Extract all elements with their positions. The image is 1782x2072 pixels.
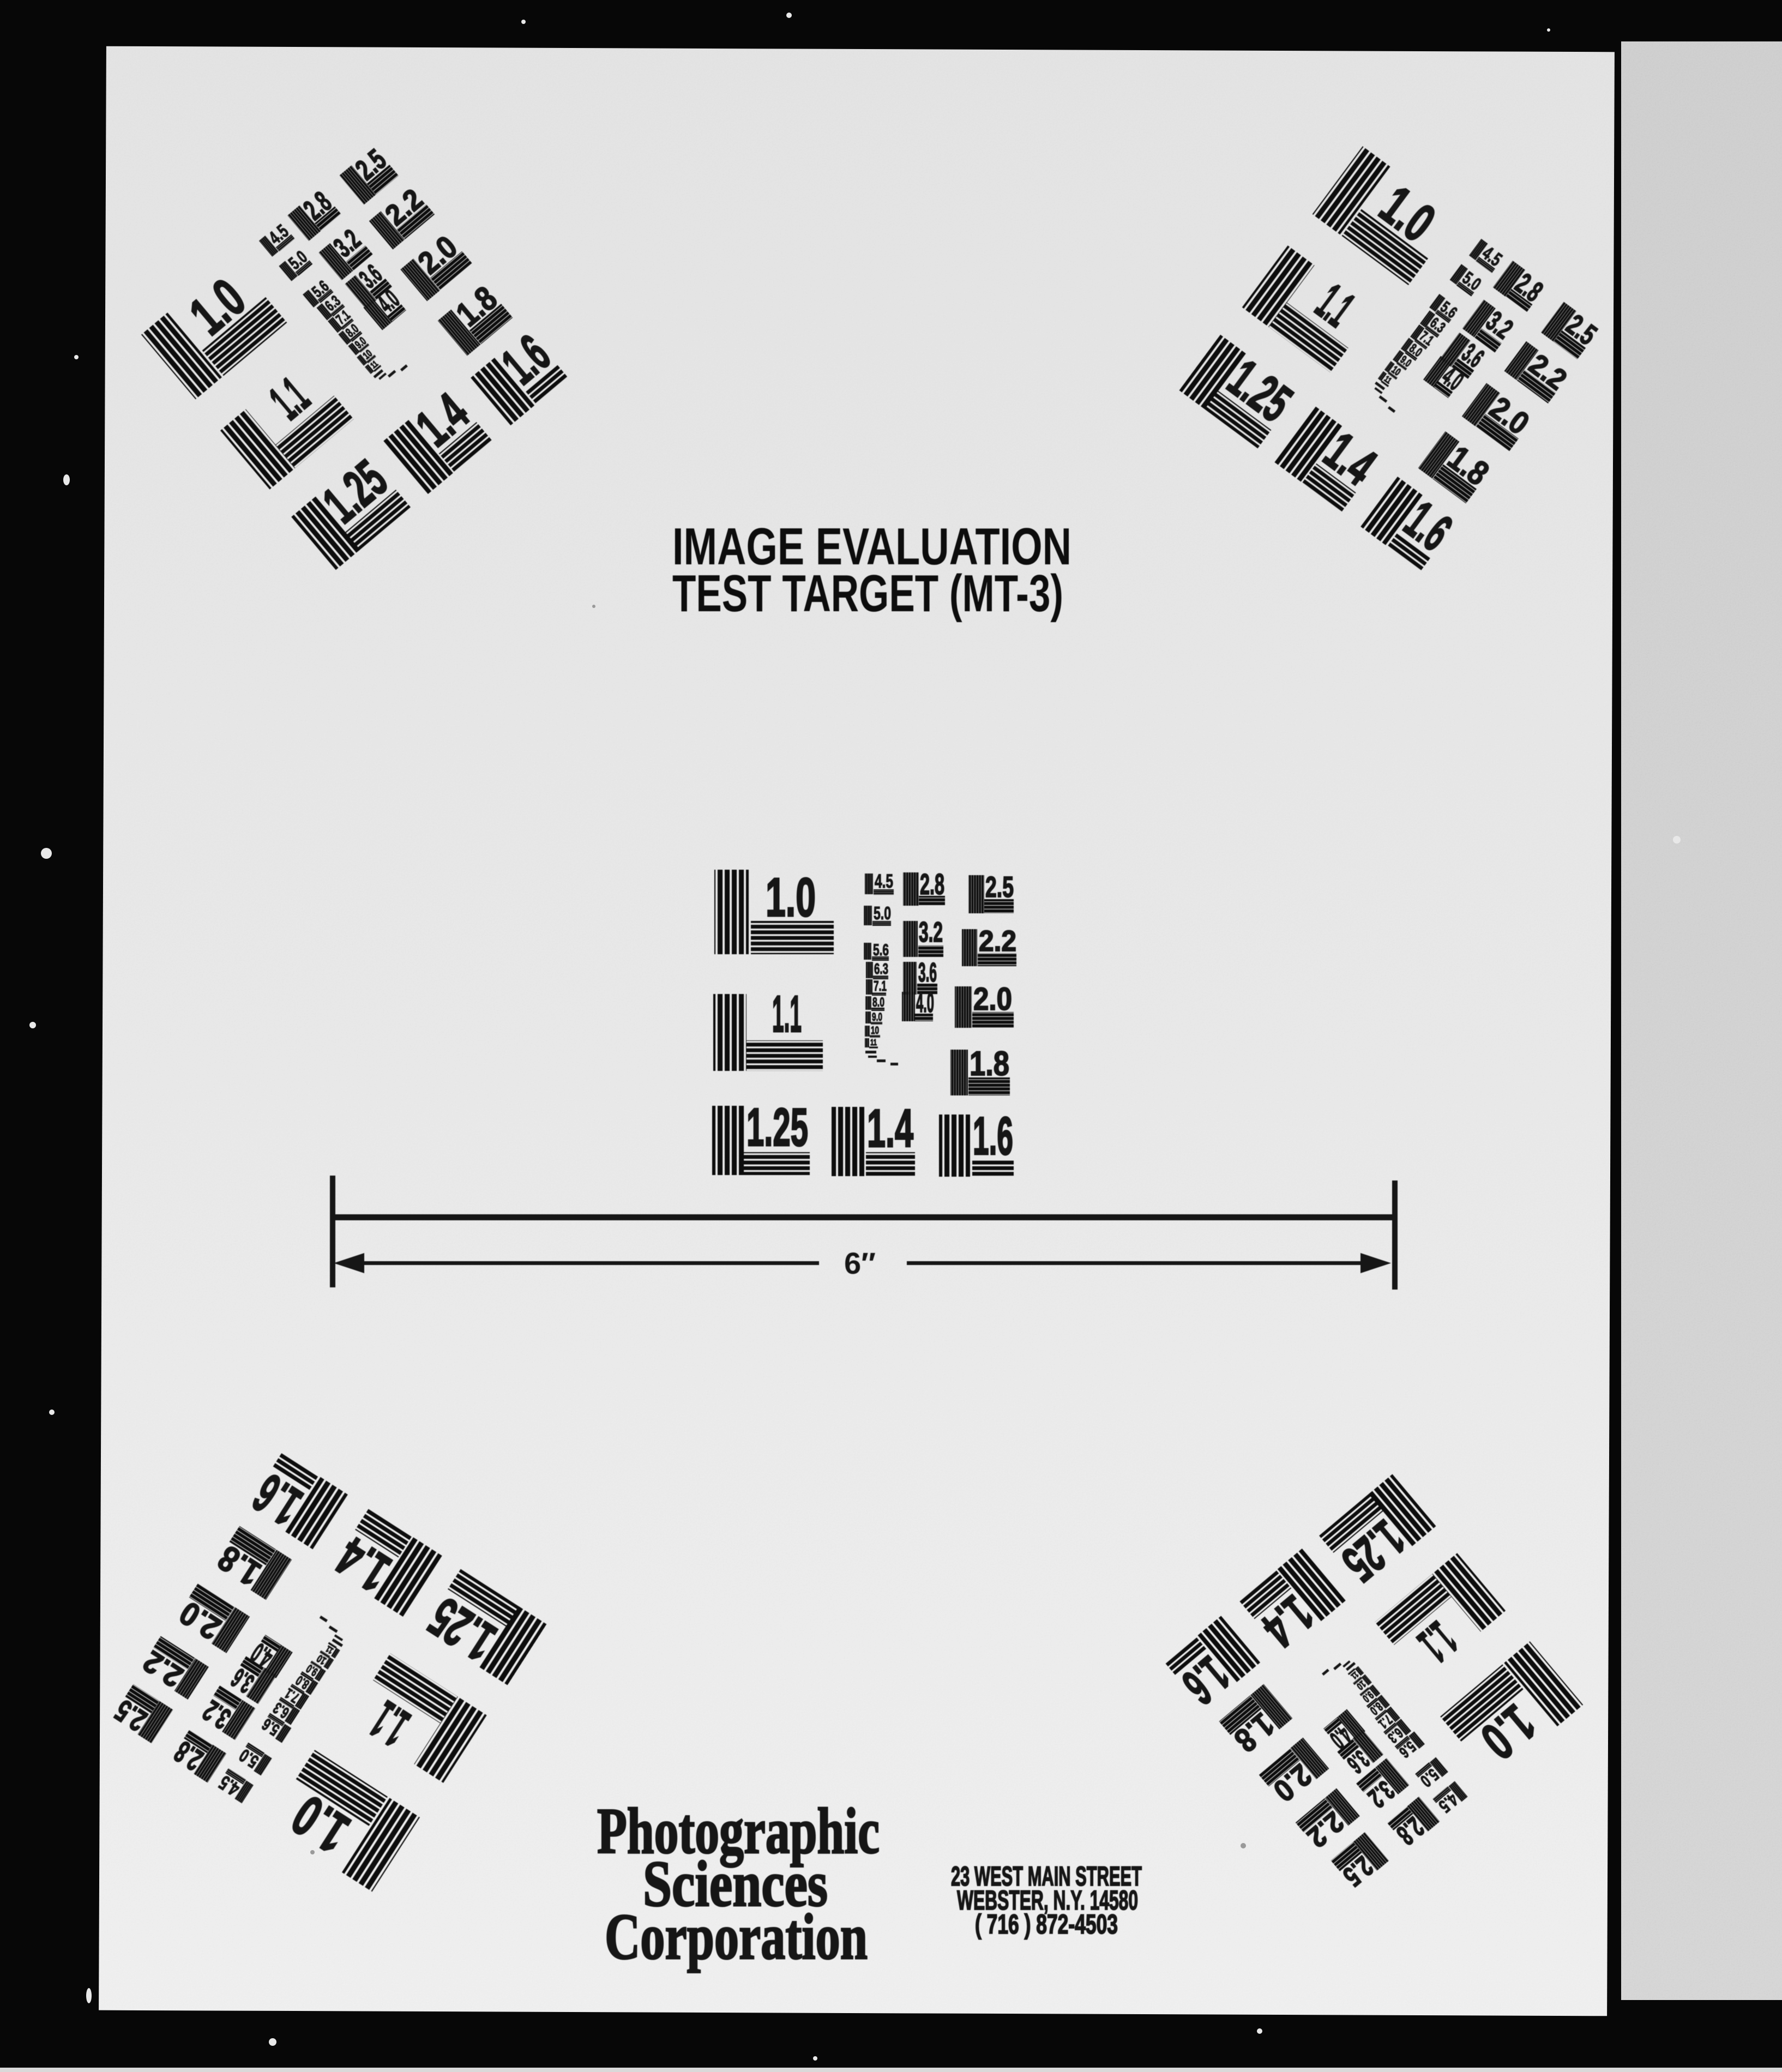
svg-text:6″: 6″: [844, 1246, 876, 1280]
svg-text:( 716 ) 872-4503: ( 716 ) 872-4503: [975, 1909, 1118, 1940]
svg-text:TEST TARGET (MT-3): TEST TARGET (MT-3): [672, 564, 1063, 623]
svg-text:Corporation: Corporation: [605, 1900, 868, 1973]
